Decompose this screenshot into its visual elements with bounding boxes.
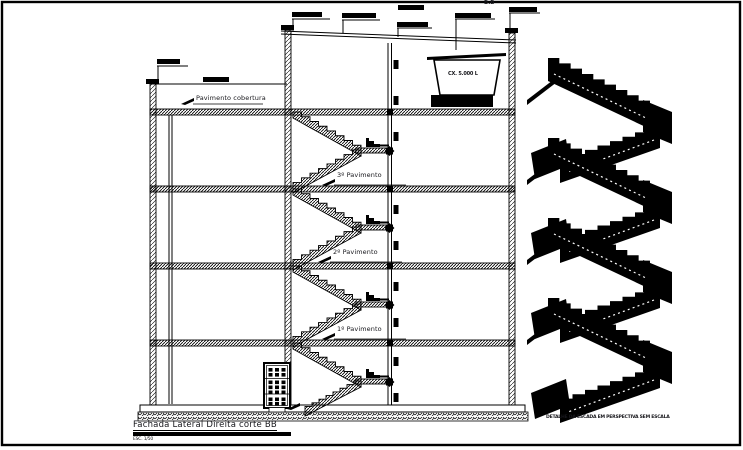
stair-flight bbox=[293, 112, 361, 156]
tank-lid bbox=[427, 53, 506, 60]
stair-direction-arrow bbox=[366, 292, 380, 301]
shaft-tick bbox=[394, 318, 399, 327]
label-roof-floor: Pavimento cobertura bbox=[196, 94, 266, 102]
cad-sheet: Pavimento cobertura 3º Pavimento 2º Pavi… bbox=[0, 0, 743, 450]
shaft-tick bbox=[394, 205, 399, 214]
stair-landing bbox=[356, 302, 391, 307]
stair-landing bbox=[356, 148, 391, 153]
stair-flight bbox=[293, 266, 361, 310]
door-panel-cell bbox=[269, 398, 273, 402]
shaft-node bbox=[387, 109, 393, 115]
shaft-node bbox=[387, 263, 393, 269]
shaft-tick bbox=[394, 282, 399, 291]
stair-direction-arrow bbox=[366, 215, 380, 224]
stair-flight bbox=[293, 343, 361, 387]
annotation-bar bbox=[342, 13, 376, 18]
annotation-bar bbox=[157, 59, 180, 64]
door-panel-cell bbox=[282, 398, 286, 402]
door-panel-cell bbox=[269, 381, 273, 385]
door-panel-cell bbox=[282, 381, 286, 385]
leader-arrow bbox=[181, 98, 194, 105]
door-panel-cell bbox=[282, 386, 286, 390]
door-panel-cell bbox=[275, 402, 279, 406]
door-panel-cell bbox=[269, 402, 273, 406]
shaft-tick bbox=[394, 357, 399, 366]
annotation-bar bbox=[292, 12, 322, 17]
door-panel-cell bbox=[269, 386, 273, 390]
door-panel-cell bbox=[275, 391, 279, 395]
water-tank-label: CX. 5.000 L bbox=[448, 71, 478, 77]
stair-direction-arrow bbox=[366, 138, 380, 147]
wall-cap bbox=[505, 28, 518, 33]
door-panel-cell bbox=[269, 391, 273, 395]
shaft-tick bbox=[394, 132, 399, 141]
shaft-tick bbox=[394, 60, 399, 69]
wall-cap bbox=[281, 25, 294, 30]
leader-arrow bbox=[322, 333, 335, 340]
shaft-tick bbox=[394, 241, 399, 250]
door-panel-cell bbox=[275, 386, 279, 390]
section-stairs bbox=[181, 98, 406, 416]
shaft-tick bbox=[394, 96, 399, 105]
door-panel-cell bbox=[282, 391, 286, 395]
title-underline-bar bbox=[133, 432, 291, 436]
floor-slab bbox=[150, 109, 515, 115]
stair-flight bbox=[293, 189, 361, 233]
perspective-stairs bbox=[527, 58, 672, 423]
wall bbox=[285, 30, 291, 412]
drawing-title: Fachada Lateral Direita corte BB bbox=[133, 420, 277, 431]
stair-landing bbox=[356, 379, 391, 384]
door-panel-cell bbox=[282, 402, 286, 406]
floor-slab bbox=[150, 186, 515, 192]
tank-base bbox=[431, 95, 493, 107]
shaft-node bbox=[387, 340, 393, 346]
floor-slabs bbox=[138, 109, 528, 421]
wall-cap bbox=[146, 79, 159, 84]
drawing-scale: ESC. 1/50 bbox=[133, 437, 153, 442]
elevator-shaft-door bbox=[264, 363, 290, 412]
door-panel-cell bbox=[282, 373, 286, 377]
annotation-bar bbox=[397, 22, 428, 27]
annotation-bar bbox=[509, 7, 537, 12]
door-panel-cell bbox=[269, 368, 273, 372]
label-floor-2: 2º Pavimento bbox=[333, 248, 378, 256]
floor-slab bbox=[150, 263, 515, 269]
label-floor-1: 1º Pavimento bbox=[337, 325, 382, 333]
annotation-bar bbox=[398, 5, 424, 10]
door-threshold bbox=[269, 408, 285, 413]
tank-body bbox=[434, 60, 500, 95]
shaft-tick bbox=[394, 393, 399, 402]
shaft-node bbox=[387, 186, 393, 192]
door-panel-cell bbox=[275, 381, 279, 385]
stair-landing bbox=[356, 225, 391, 230]
door-panel-cell bbox=[275, 373, 279, 377]
door-panel-cell bbox=[275, 398, 279, 402]
persp-flight-up bbox=[548, 58, 650, 129]
stair-direction-arrow bbox=[366, 369, 380, 378]
ground-slab bbox=[140, 405, 525, 412]
wall bbox=[150, 84, 156, 412]
water-tank bbox=[427, 53, 506, 107]
leader-arrow bbox=[322, 179, 335, 186]
section-drawing-canvas bbox=[0, 0, 743, 450]
door-panel-cell bbox=[282, 368, 286, 372]
label-floor-3: 3º Pavimento bbox=[337, 171, 382, 179]
perspective-caption: DETALHE DA ESCADA EM PERSPECTIVA SEM ESC… bbox=[546, 415, 670, 420]
annotation-bar bbox=[455, 13, 491, 18]
door-panel-cell bbox=[269, 373, 273, 377]
leader-arrow bbox=[318, 256, 331, 263]
wall bbox=[509, 33, 515, 412]
section-marker-label: B.B bbox=[484, 0, 494, 6]
door-panel-cell bbox=[275, 368, 279, 372]
annotation-bar bbox=[203, 77, 229, 82]
floor-slab bbox=[150, 340, 515, 346]
